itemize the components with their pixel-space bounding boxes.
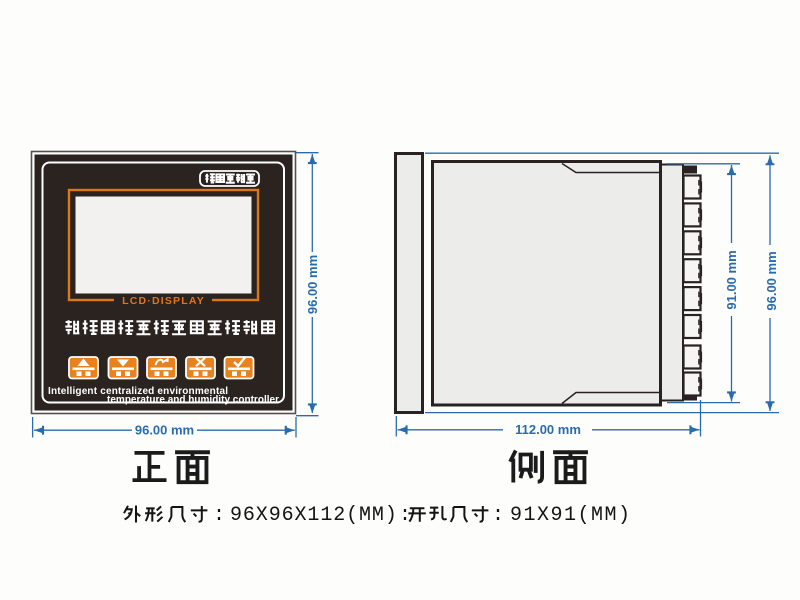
svg-text:LCD·DISPLAY: LCD·DISPLAY [122, 295, 205, 307]
svg-text::: : [213, 504, 225, 527]
svg-text:91.00 mm: 91.00 mm [724, 250, 739, 309]
svg-text:112.00 mm: 112.00 mm [515, 422, 581, 437]
svg-text:91X91(MM): 91X91(MM) [510, 504, 632, 527]
svg-text::: : [492, 504, 504, 527]
svg-text:96.00 mm: 96.00 mm [305, 255, 320, 314]
svg-text:temperature and humidity contr: temperature and humidity controller [107, 394, 279, 405]
svg-text:96X96X112(MM): 96X96X112(MM) [230, 504, 398, 527]
svg-text:96.00 mm: 96.00 mm [764, 251, 779, 310]
svg-text:96.00 mm: 96.00 mm [135, 423, 194, 438]
svg-text::: : [399, 504, 411, 527]
